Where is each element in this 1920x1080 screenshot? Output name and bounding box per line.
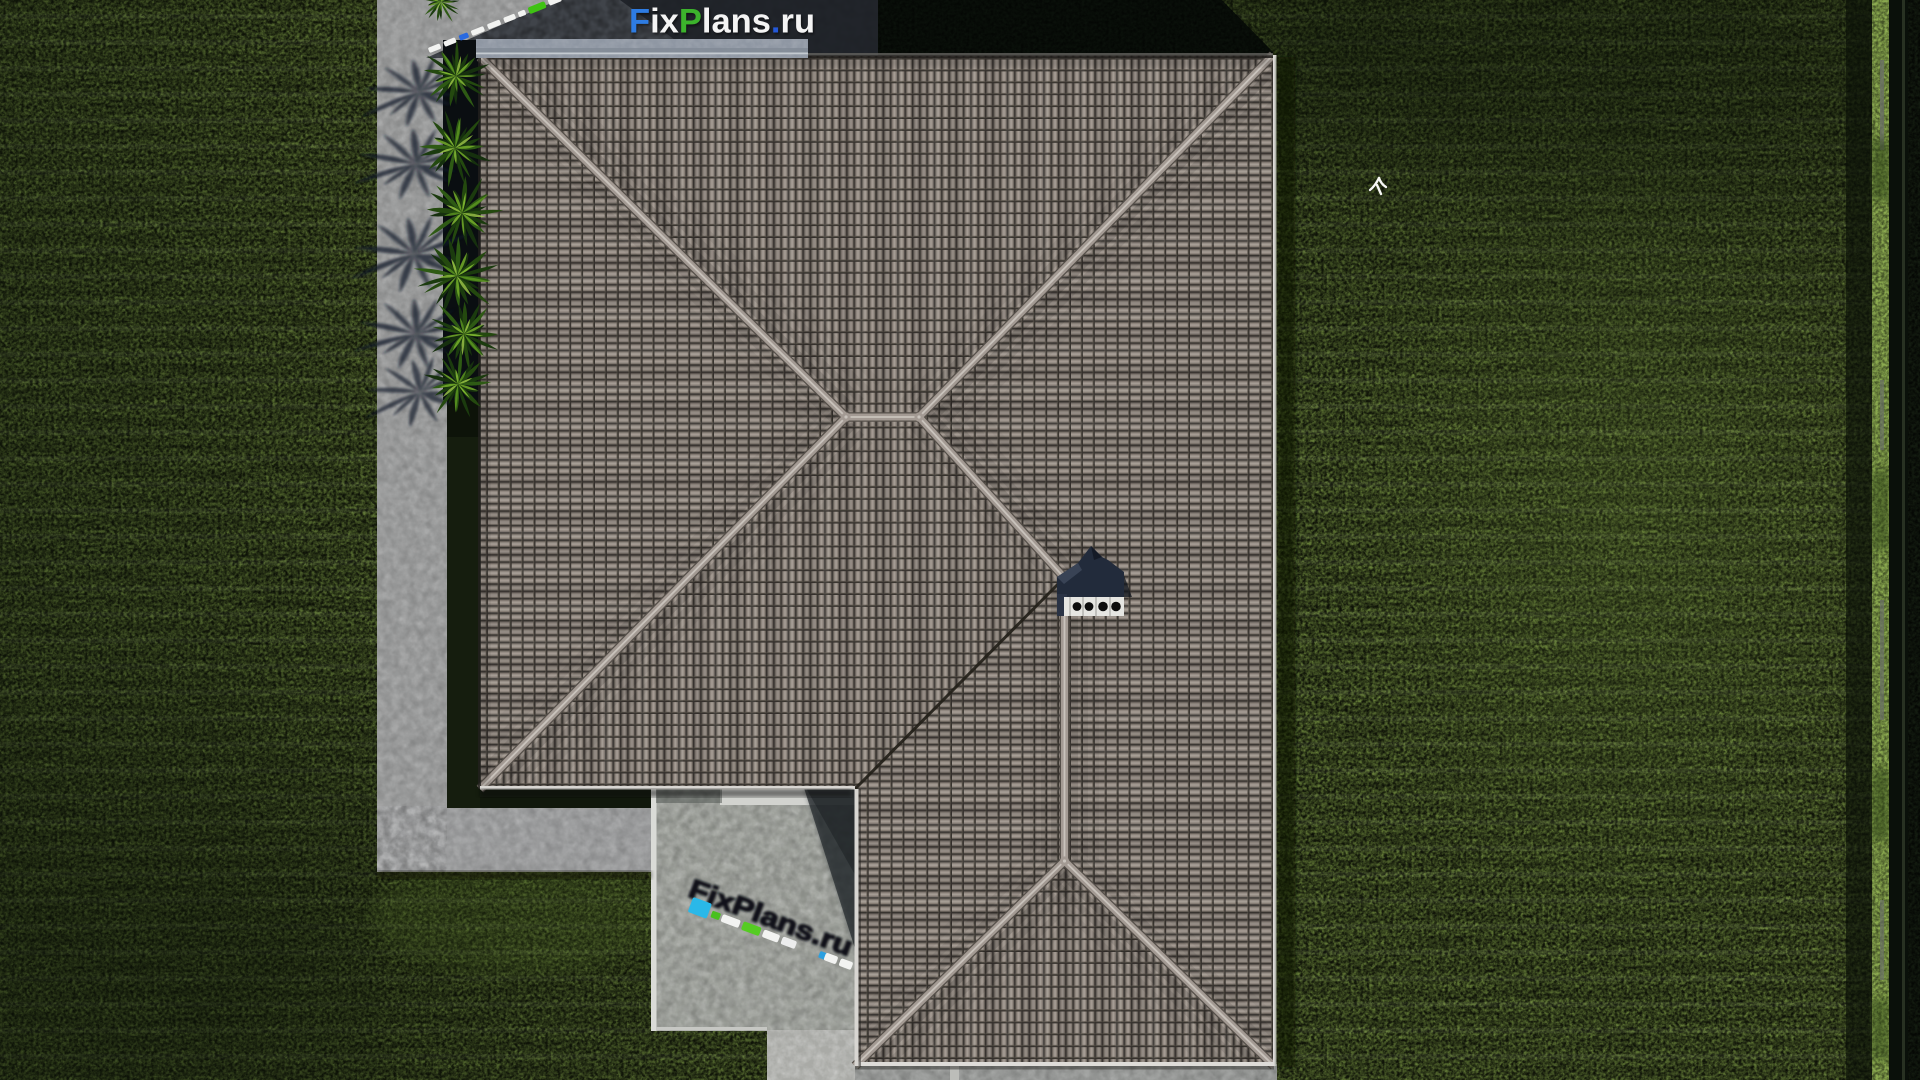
svg-text:FixPlans.ru: FixPlans.ru <box>629 3 815 41</box>
